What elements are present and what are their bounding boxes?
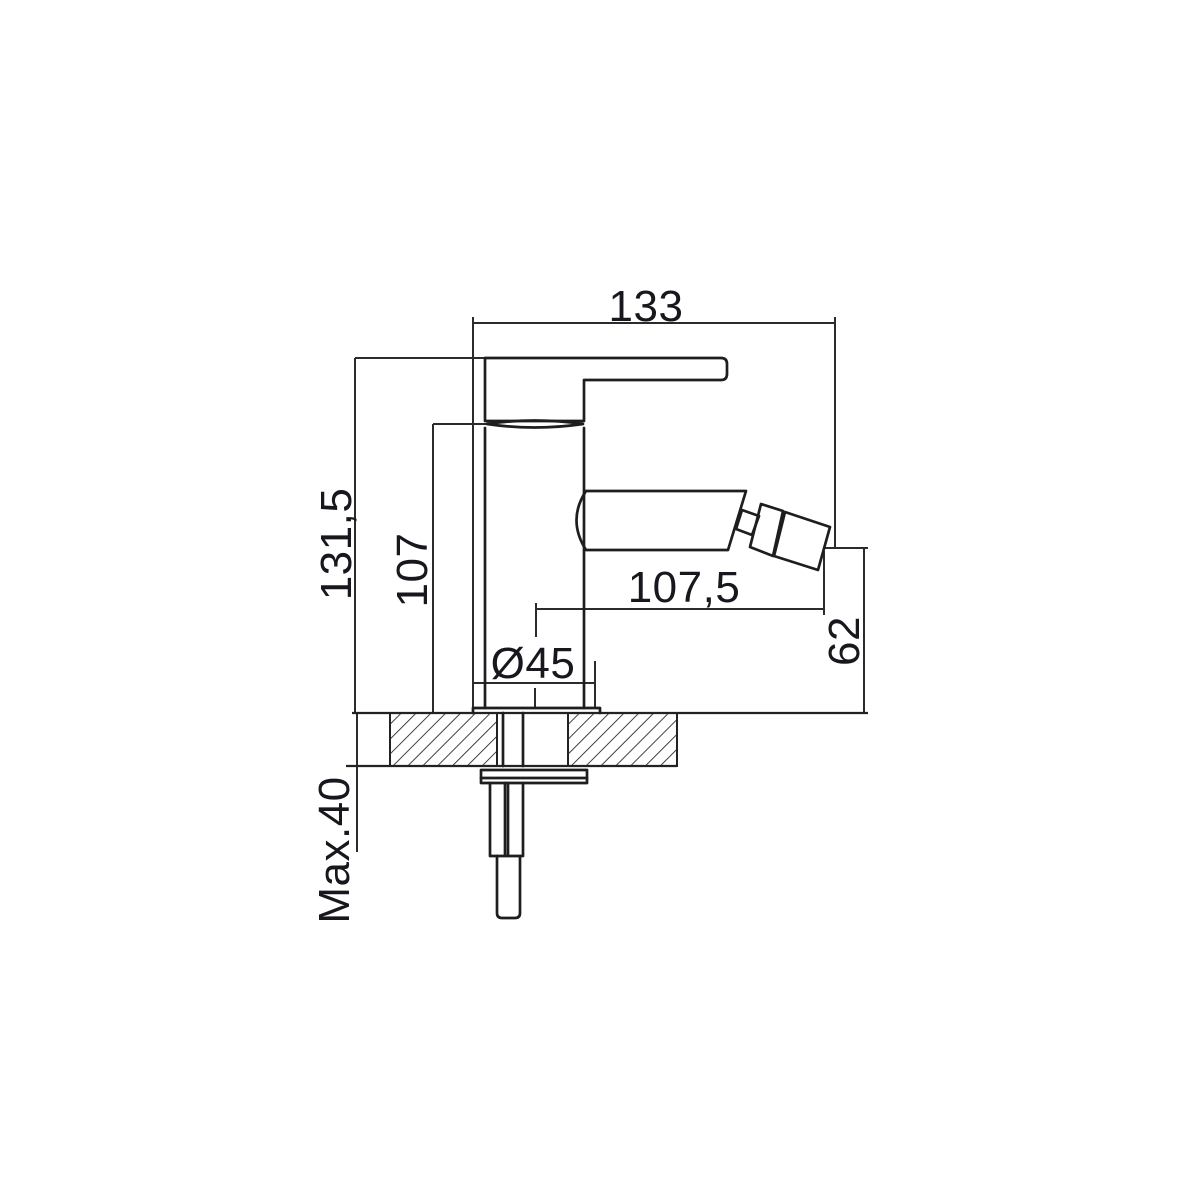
mounting-washer	[481, 770, 587, 783]
threaded-hex-section	[490, 783, 523, 856]
label-base-diameter: Ø45	[491, 639, 576, 688]
label-max-deck-thickness: Max.40	[310, 776, 359, 923]
dimension-labels: 133 131,5 107 107,5 Ø45 62 Max.40	[310, 282, 869, 924]
label-spout-reach: 107,5	[628, 563, 741, 612]
aerator	[736, 504, 830, 570]
threaded-rod	[497, 856, 520, 918]
aerator-body	[774, 512, 830, 570]
label-overall-height: 131,5	[312, 488, 361, 601]
shank-tube-in-hole	[503, 713, 523, 766]
technical-drawing-canvas: 133 131,5 107 107,5 Ø45 62 Max.40	[0, 0, 1200, 1200]
deck-hatch-right	[568, 713, 677, 766]
cartridge-ring	[487, 421, 583, 428]
label-body-height: 107	[388, 533, 437, 608]
label-overall-length: 133	[609, 282, 684, 331]
drawing-page: 133 131,5 107 107,5 Ø45 62 Max.40	[0, 0, 1200, 1200]
deck-hatch-left	[390, 713, 497, 766]
label-outlet-height: 62	[820, 616, 869, 666]
spout	[577, 491, 747, 550]
aerator-ring	[750, 504, 783, 556]
lever-handle	[485, 358, 727, 421]
countertop-section	[346, 713, 868, 766]
dimension-107	[433, 424, 486, 713]
mounting-hardware	[481, 770, 587, 918]
